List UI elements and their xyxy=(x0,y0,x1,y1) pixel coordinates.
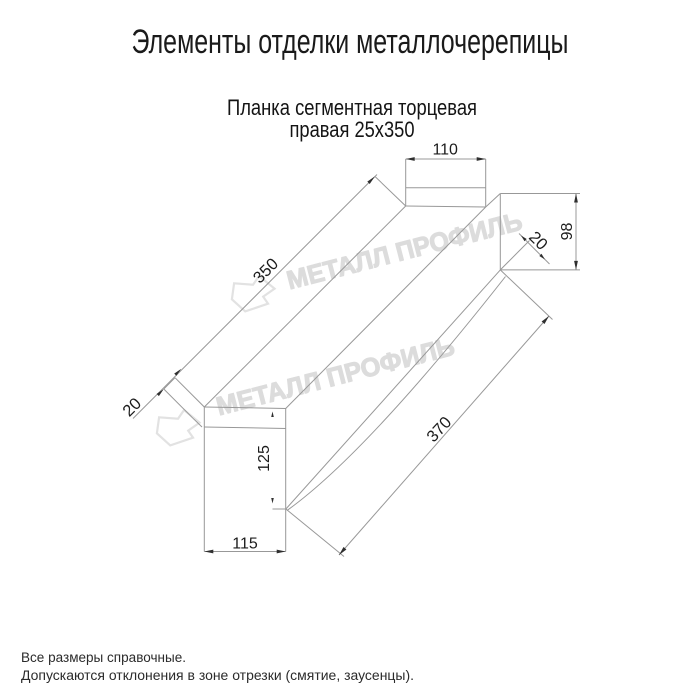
svg-text:110: 110 xyxy=(432,142,458,159)
svg-text:125: 125 xyxy=(256,445,273,472)
svg-text:115: 115 xyxy=(232,536,258,553)
svg-text:98: 98 xyxy=(559,223,576,241)
svg-text:Все размеры справочные.: Все размеры справочные. xyxy=(21,650,186,665)
svg-text:правая 25х350: правая 25х350 xyxy=(290,117,415,142)
svg-text:Допускаются отклонения в зоне: Допускаются отклонения в зоне отрезки (с… xyxy=(21,668,414,683)
svg-text:Элементы отделки металлочерепи: Элементы отделки металлочерепицы xyxy=(132,23,569,61)
